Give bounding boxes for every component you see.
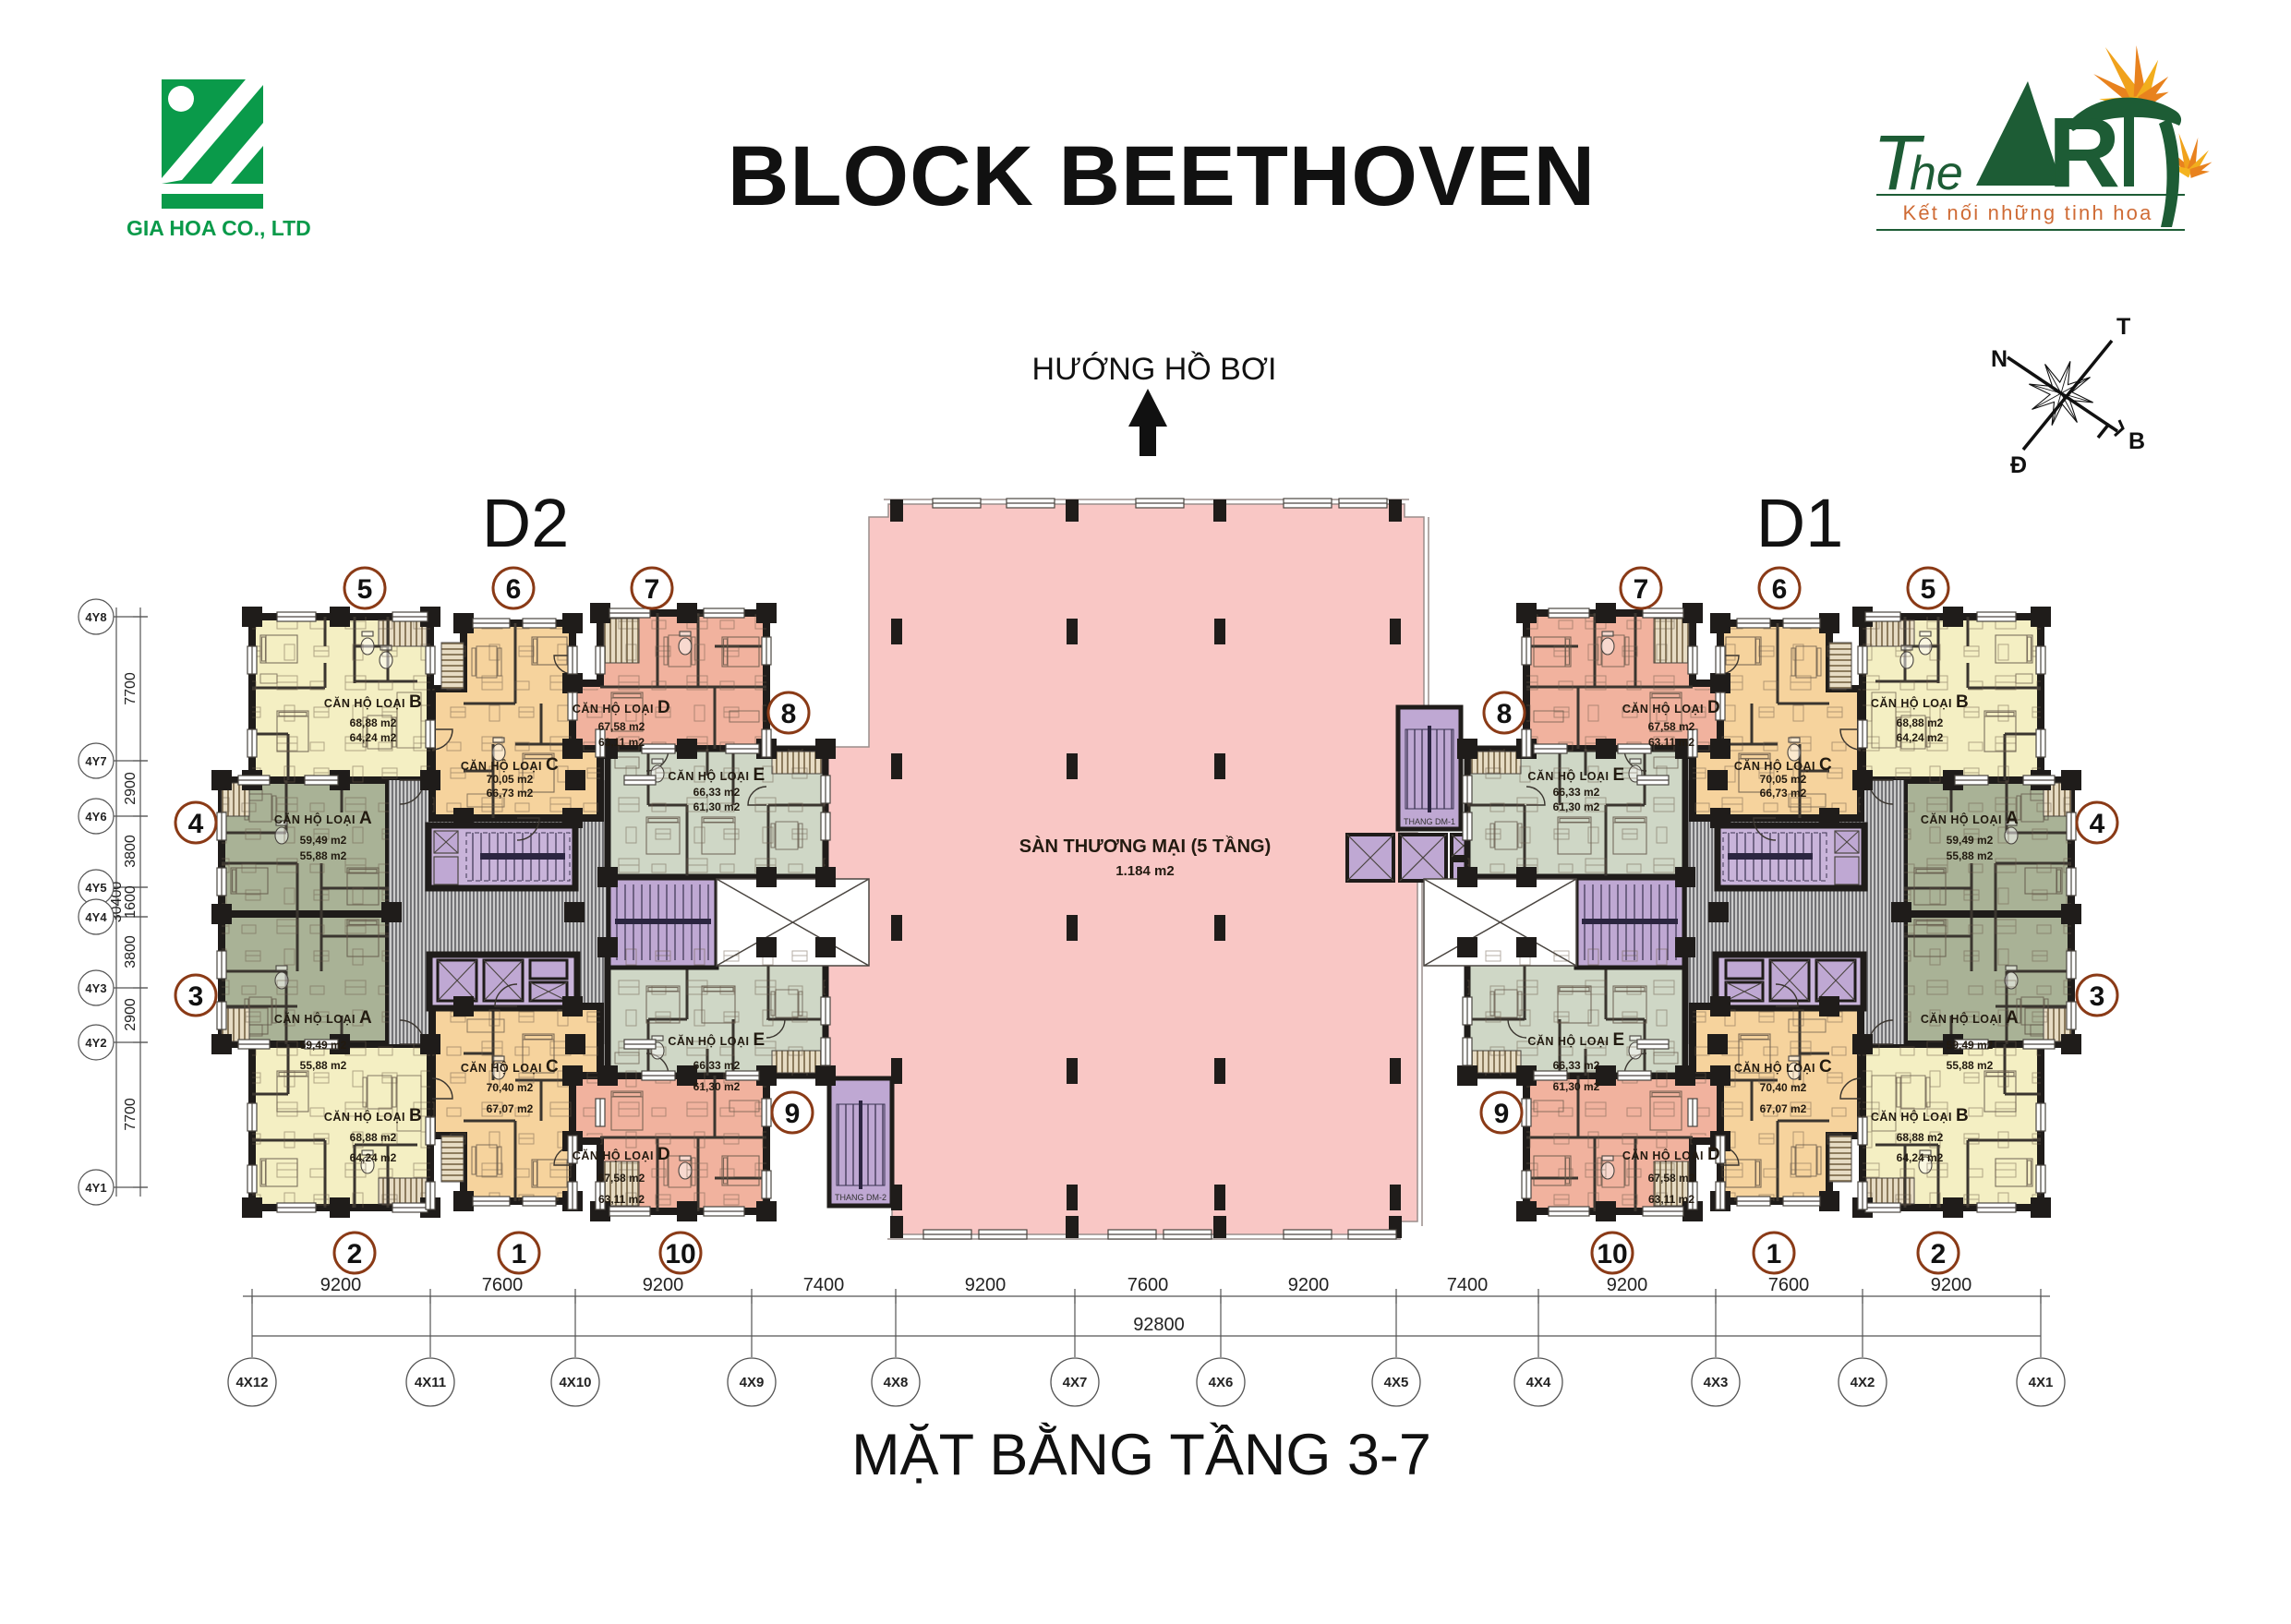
svg-text:4Y3: 4Y3 (85, 981, 106, 995)
svg-text:5: 5 (1921, 574, 1936, 605)
svg-text:55,88 m2: 55,88 m2 (1947, 1059, 1994, 1072)
svg-text:68,88 m2: 68,88 m2 (350, 1131, 397, 1144)
svg-text:10: 10 (665, 1239, 695, 1269)
svg-text:59,49 m2: 59,49 m2 (1947, 834, 1994, 847)
svg-text:66,33 m2: 66,33 m2 (1553, 1059, 1600, 1072)
svg-text:61,30 m2: 61,30 m2 (693, 800, 741, 813)
svg-text:4: 4 (2090, 809, 2105, 839)
svg-text:66,73 m2: 66,73 m2 (487, 787, 534, 800)
svg-text:R: R (2048, 96, 2120, 208)
svg-text:2900: 2900 (123, 998, 139, 1031)
svg-text:3800: 3800 (123, 935, 139, 968)
svg-text:D1: D1 (1756, 485, 1844, 561)
svg-text:7: 7 (645, 574, 660, 605)
svg-text:61,30 m2: 61,30 m2 (1553, 800, 1600, 813)
svg-text:8: 8 (1497, 699, 1513, 729)
svg-text:7700: 7700 (123, 672, 139, 705)
svg-text:68,88 m2: 68,88 m2 (350, 716, 397, 729)
svg-text:4X11: 4X11 (415, 1375, 446, 1390)
svg-text:55,88 m2: 55,88 m2 (300, 849, 347, 862)
svg-text:67,58 m2: 67,58 m2 (598, 720, 645, 733)
svg-text:B: B (2128, 428, 2145, 454)
svg-text:5: 5 (357, 574, 373, 605)
svg-text:67,07 m2: 67,07 m2 (1760, 1102, 1807, 1115)
svg-text:67,58 m2: 67,58 m2 (1648, 720, 1695, 733)
svg-text:4Y7: 4Y7 (85, 754, 106, 768)
svg-text:6: 6 (506, 574, 522, 605)
svg-text:7400: 7400 (1447, 1275, 1489, 1295)
svg-text:N: N (1991, 346, 2008, 372)
svg-text:9200: 9200 (643, 1275, 684, 1295)
svg-text:67,58 m2: 67,58 m2 (1648, 1172, 1695, 1185)
svg-text:1600: 1600 (123, 885, 139, 919)
svg-text:7600: 7600 (482, 1275, 524, 1295)
svg-text:10: 10 (1597, 1239, 1627, 1269)
svg-text:4Y5: 4Y5 (85, 881, 106, 895)
svg-text:55,88 m2: 55,88 m2 (300, 1059, 347, 1072)
svg-text:59,49 m2: 59,49 m2 (1947, 1039, 1994, 1052)
svg-text:Đ: Đ (2010, 452, 2027, 478)
svg-text:7400: 7400 (803, 1275, 845, 1295)
svg-text:Kết nối những tinh hoa: Kết nối những tinh hoa (1902, 201, 2152, 224)
svg-text:2: 2 (1931, 1239, 1947, 1269)
svg-text:2900: 2900 (123, 772, 139, 805)
svg-text:64,24 m2: 64,24 m2 (350, 1151, 397, 1164)
svg-text:1: 1 (1766, 1239, 1782, 1269)
svg-text:4X6: 4X6 (1209, 1375, 1234, 1390)
svg-text:he: he (1910, 147, 1963, 200)
svg-text:1.184 m2: 1.184 m2 (1115, 863, 1174, 879)
svg-text:3: 3 (188, 981, 204, 1012)
svg-text:3: 3 (2090, 981, 2105, 1012)
svg-text:4X9: 4X9 (740, 1375, 765, 1390)
svg-text:THANG DM-2: THANG DM-2 (835, 1193, 886, 1202)
svg-text:1: 1 (512, 1239, 527, 1269)
svg-text:4: 4 (188, 809, 204, 839)
svg-text:7700: 7700 (123, 1098, 139, 1131)
svg-text:70,05 m2: 70,05 m2 (487, 773, 534, 786)
svg-text:4X10: 4X10 (559, 1375, 591, 1390)
svg-text:66,33 m2: 66,33 m2 (693, 1059, 741, 1072)
svg-text:64,24 m2: 64,24 m2 (1897, 731, 1944, 744)
svg-text:9200: 9200 (320, 1275, 362, 1295)
svg-text:67,07 m2: 67,07 m2 (487, 1102, 534, 1115)
svg-text:MẶT BẰNG TẦNG 3-7: MẶT BẰNG TẦNG 3-7 (851, 1422, 1431, 1487)
svg-text:63,11 m2: 63,11 m2 (1648, 736, 1694, 749)
svg-text:92800: 92800 (1133, 1315, 1185, 1335)
svg-text:4X12: 4X12 (235, 1375, 268, 1390)
svg-text:4X1: 4X1 (2029, 1375, 2054, 1390)
svg-text:7600: 7600 (1127, 1275, 1169, 1295)
svg-text:4Y1: 4Y1 (85, 1181, 106, 1195)
svg-text:9: 9 (785, 1099, 801, 1129)
svg-text:4Y2: 4Y2 (85, 1036, 106, 1050)
svg-text:59,49 m2: 59,49 m2 (300, 1039, 347, 1052)
svg-text:55,88 m2: 55,88 m2 (1947, 849, 1994, 862)
svg-text:9200: 9200 (1607, 1275, 1648, 1295)
svg-text:4Y6: 4Y6 (85, 810, 106, 824)
svg-text:SÀN THƯƠNG MẠI (5 TẦNG): SÀN THƯƠNG MẠI (5 TẦNG) (1019, 836, 1272, 857)
svg-text:66,33 m2: 66,33 m2 (693, 786, 741, 799)
svg-text:70,40 m2: 70,40 m2 (1760, 1081, 1807, 1094)
svg-text:GIA HOA CO., LTD: GIA HOA CO., LTD (127, 216, 311, 240)
svg-text:4X3: 4X3 (1704, 1375, 1729, 1390)
svg-text:61,30 m2: 61,30 m2 (1553, 1080, 1600, 1093)
svg-text:THANG DM-1: THANG DM-1 (1404, 817, 1455, 826)
svg-text:64,24 m2: 64,24 m2 (350, 731, 397, 744)
svg-text:67,58 m2: 67,58 m2 (598, 1172, 645, 1185)
svg-text:BLOCK BEETHOVEN: BLOCK BEETHOVEN (728, 129, 1596, 223)
svg-text:2: 2 (347, 1239, 363, 1269)
svg-text:4X2: 4X2 (1851, 1375, 1875, 1390)
svg-text:9200: 9200 (965, 1275, 1007, 1295)
svg-text:68,88 m2: 68,88 m2 (1897, 716, 1944, 729)
svg-text:4X7: 4X7 (1063, 1375, 1088, 1390)
svg-text:3800: 3800 (123, 835, 139, 868)
svg-text:4Y8: 4Y8 (85, 610, 106, 624)
svg-text:4X5: 4X5 (1384, 1375, 1409, 1390)
svg-text:59,49 m2: 59,49 m2 (300, 834, 347, 847)
svg-text:70,40 m2: 70,40 m2 (487, 1081, 534, 1094)
svg-text:9200: 9200 (1931, 1275, 1972, 1295)
svg-text:9: 9 (1494, 1099, 1510, 1129)
svg-text:T: T (2116, 314, 2130, 340)
svg-text:7: 7 (1634, 574, 1649, 605)
svg-text:7600: 7600 (1768, 1275, 1810, 1295)
svg-text:63,11 m2: 63,11 m2 (598, 736, 645, 749)
svg-text:66,33 m2: 66,33 m2 (1553, 786, 1600, 799)
svg-text:9200: 9200 (1288, 1275, 1330, 1295)
svg-text:70,05 m2: 70,05 m2 (1760, 773, 1807, 786)
svg-text:4Y4: 4Y4 (85, 910, 107, 924)
svg-text:63,11 m2: 63,11 m2 (598, 1193, 645, 1206)
svg-text:8: 8 (781, 699, 797, 729)
svg-text:D2: D2 (482, 485, 570, 561)
svg-text:4X8: 4X8 (884, 1375, 909, 1390)
svg-text:68,88 m2: 68,88 m2 (1897, 1131, 1944, 1144)
svg-text:61,30 m2: 61,30 m2 (693, 1080, 741, 1093)
svg-text:64,24 m2: 64,24 m2 (1897, 1151, 1944, 1164)
svg-text:HƯỚNG HỒ BƠI: HƯỚNG HỒ BƠI (1032, 352, 1277, 387)
svg-text:63,11 m2: 63,11 m2 (1648, 1193, 1694, 1206)
svg-text:4X4: 4X4 (1526, 1375, 1551, 1390)
svg-text:6: 6 (1772, 574, 1788, 605)
svg-text:66,73 m2: 66,73 m2 (1760, 787, 1807, 800)
